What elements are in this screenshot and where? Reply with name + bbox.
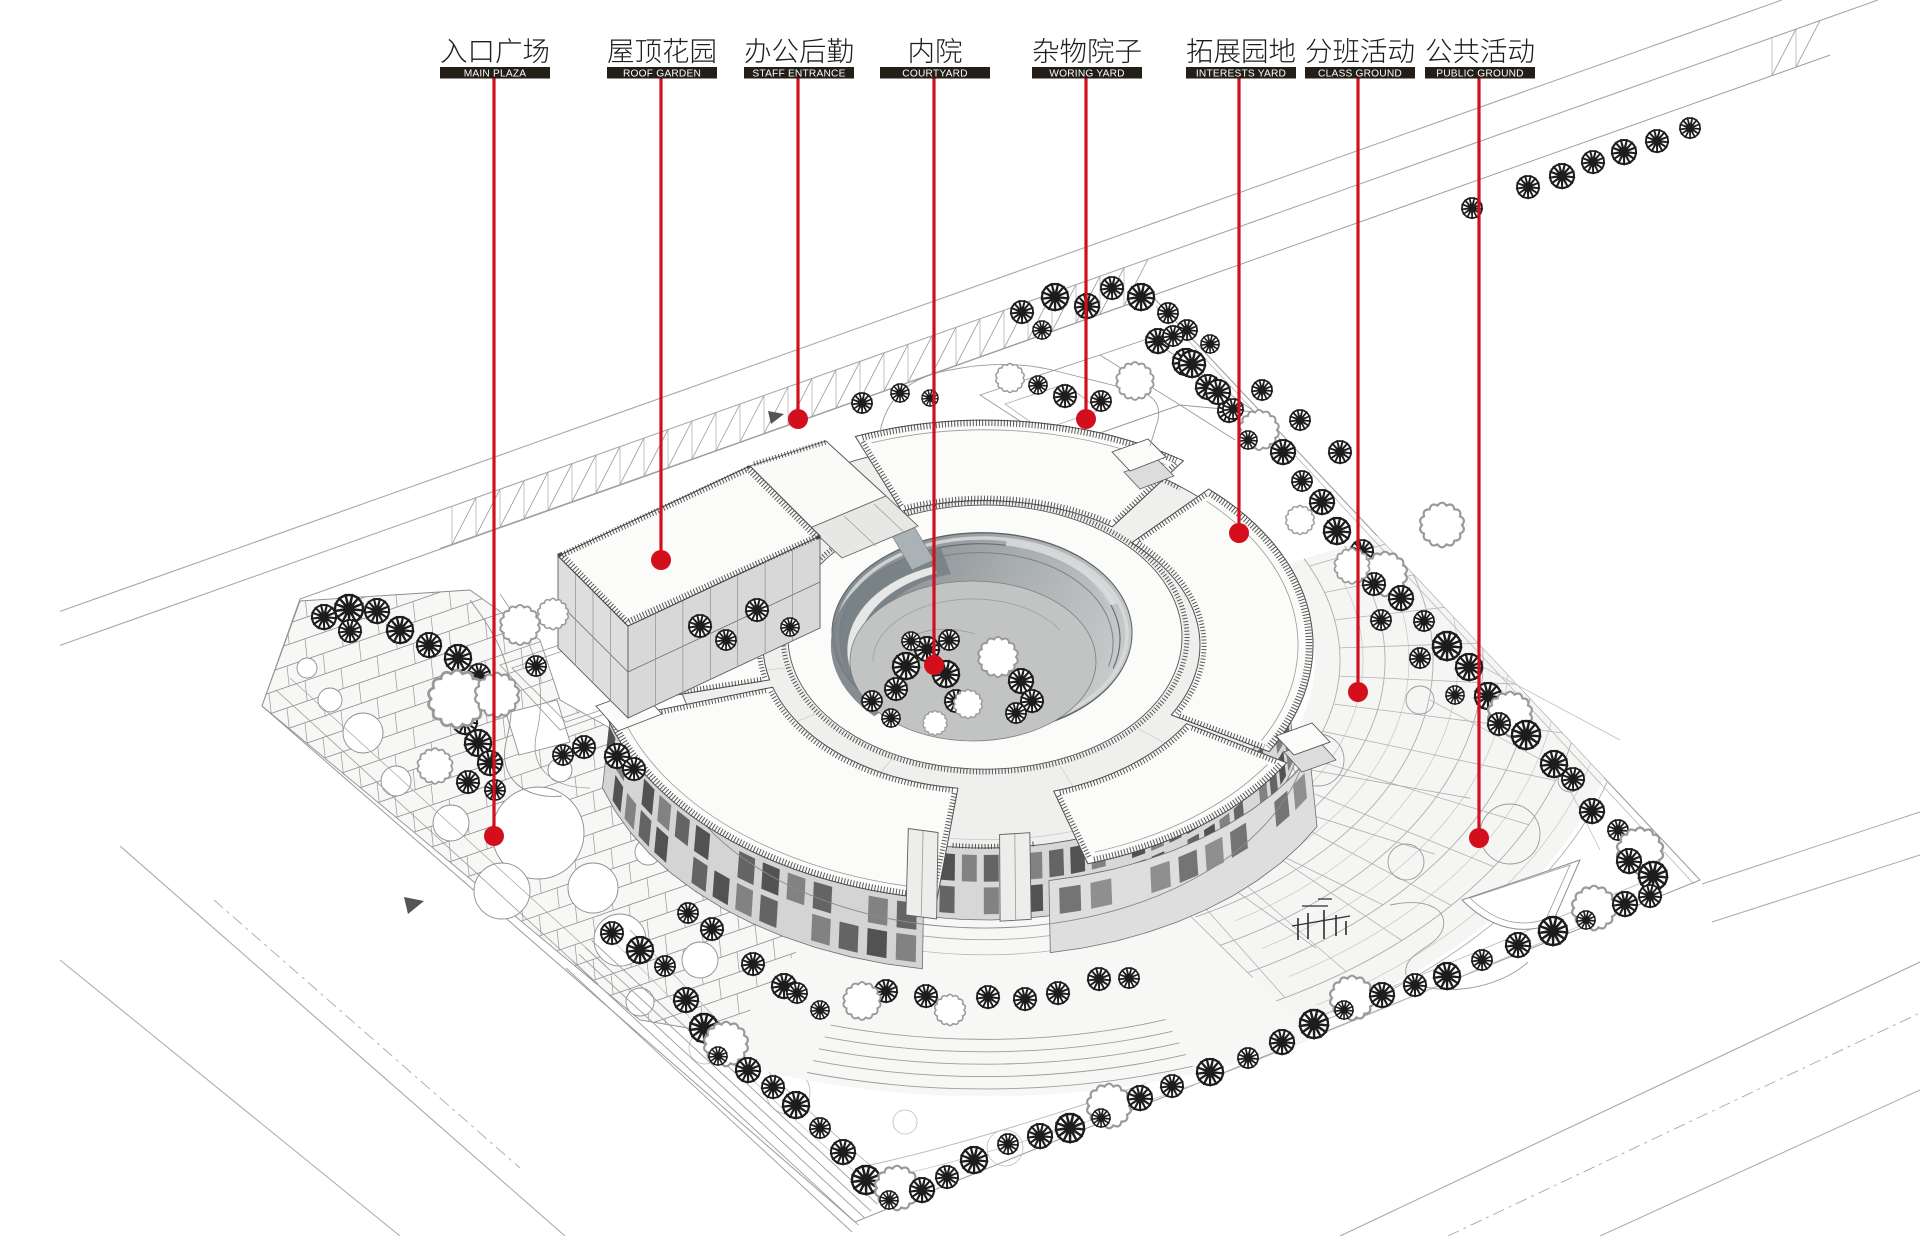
- svg-text:STAFF ENTRANCE: STAFF ENTRANCE: [752, 68, 845, 79]
- svg-text:INTERESTS YARD: INTERESTS YARD: [1196, 68, 1286, 79]
- svg-text:COURTYARD: COURTYARD: [902, 68, 967, 79]
- svg-text:MAIN PLAZA: MAIN PLAZA: [464, 68, 527, 79]
- svg-text:ROOF GARDEN: ROOF GARDEN: [623, 68, 701, 79]
- svg-text:WORING YARD: WORING YARD: [1049, 68, 1124, 79]
- svg-text:CLASS GROUND: CLASS GROUND: [1318, 68, 1402, 79]
- svg-text:PUBLIC GROUND: PUBLIC GROUND: [1436, 68, 1524, 79]
